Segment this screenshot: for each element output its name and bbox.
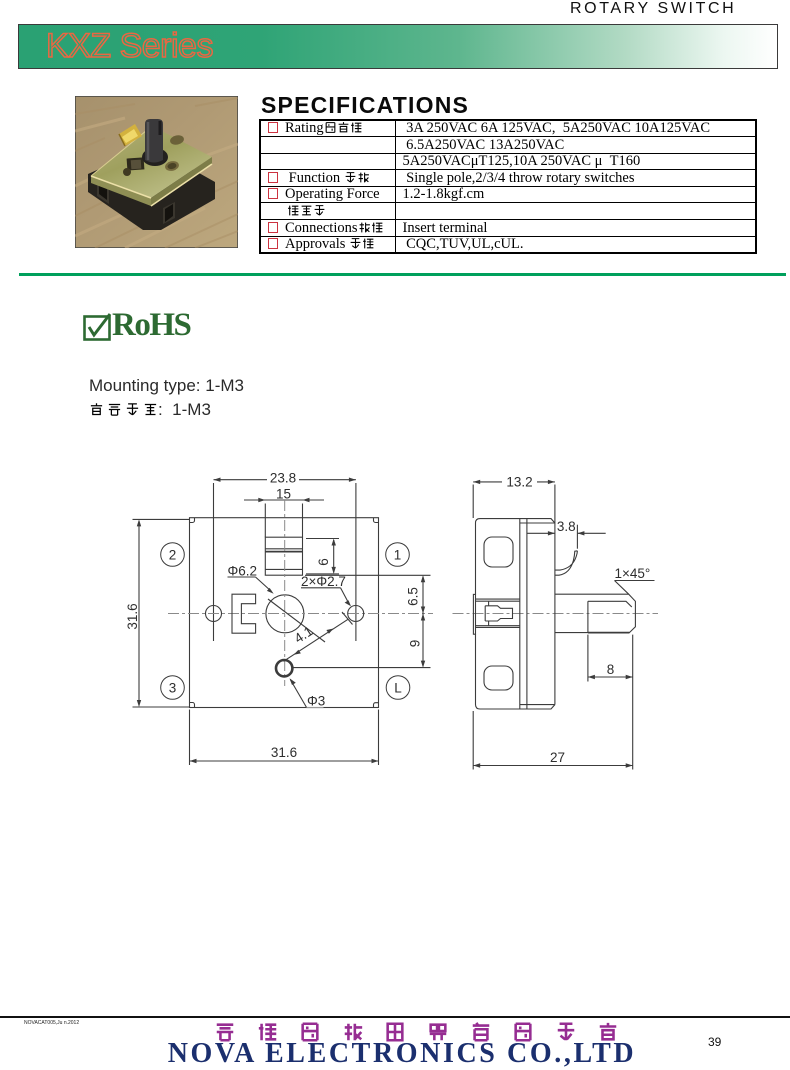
svg-text:31.6: 31.6 bbox=[271, 745, 297, 760]
svg-text:9: 9 bbox=[408, 640, 423, 648]
svg-text:1: 1 bbox=[394, 548, 402, 563]
svg-text:3.8: 3.8 bbox=[557, 519, 576, 534]
svg-text:2×Φ2.7: 2×Φ2.7 bbox=[301, 574, 346, 589]
svg-text:13.2: 13.2 bbox=[506, 475, 532, 490]
svg-text:8: 8 bbox=[607, 662, 615, 677]
svg-text:27: 27 bbox=[550, 750, 565, 765]
svg-text:6: 6 bbox=[316, 558, 331, 566]
svg-text:Φ3: Φ3 bbox=[307, 694, 325, 709]
svg-text:2: 2 bbox=[169, 548, 177, 563]
svg-text:Φ6.2: Φ6.2 bbox=[228, 564, 258, 579]
svg-text:3: 3 bbox=[169, 681, 177, 696]
svg-text:1×45°: 1×45° bbox=[615, 566, 651, 581]
svg-text:L: L bbox=[394, 681, 402, 696]
svg-text:31.6: 31.6 bbox=[125, 603, 140, 629]
svg-text:6.5: 6.5 bbox=[406, 587, 421, 606]
svg-text:15: 15 bbox=[276, 487, 291, 502]
svg-text:23.8: 23.8 bbox=[270, 471, 296, 486]
